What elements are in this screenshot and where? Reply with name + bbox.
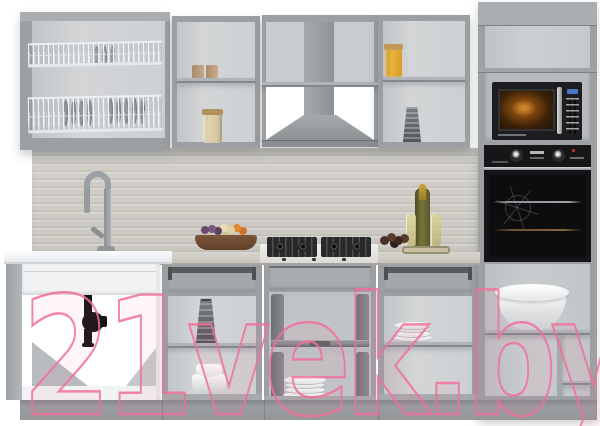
oven-brand-text	[570, 157, 584, 159]
chimney-duct-lower	[304, 87, 334, 119]
burner-2	[298, 242, 308, 252]
basket-side-right	[356, 294, 369, 344]
open-shelf-unit-right	[378, 15, 470, 148]
internal-drawer-front	[269, 266, 371, 290]
bowl-rim	[495, 284, 569, 301]
middle-shelf	[177, 78, 255, 83]
oven-trim	[484, 167, 591, 170]
column-base-interior	[485, 264, 590, 398]
door-line-lower	[493, 229, 582, 231]
dish-rack-cabinet	[20, 12, 170, 150]
sink-bottom-rail	[22, 386, 168, 400]
oven-display-icons-2	[530, 157, 544, 159]
serving-tray-group	[376, 188, 452, 258]
microwave-display	[567, 89, 578, 94]
white-bowl-top	[196, 364, 222, 377]
plate-stack	[394, 322, 432, 342]
basket-back	[277, 296, 363, 342]
hob-control-dot-1	[282, 258, 286, 261]
middle-shelf	[168, 343, 256, 348]
microwave-keypad	[566, 98, 579, 134]
burner-3	[329, 242, 339, 252]
glass-jar-with-grains	[203, 113, 222, 143]
column-top-box	[478, 2, 597, 26]
basket-handle-notch	[310, 341, 330, 346]
drawer-rail-right	[252, 267, 256, 280]
plinth-seam-1	[162, 400, 163, 420]
apron-groove	[24, 271, 166, 272]
beige-cup-2	[206, 65, 218, 78]
empty-niche	[485, 26, 590, 68]
oven-control-panel	[484, 145, 591, 167]
champagne-bottle	[415, 188, 430, 248]
chimney-duct-upper	[304, 22, 334, 82]
cabinet-gap-3	[376, 265, 378, 400]
side-panel-left-face	[6, 263, 22, 400]
glass-right	[431, 214, 441, 248]
base-cabinet-c	[378, 264, 478, 400]
fruits	[201, 226, 209, 234]
oven-door-glass	[489, 175, 586, 257]
hob-grate-left	[267, 237, 317, 257]
column-floor	[485, 396, 590, 398]
cabinet-gap-2	[262, 265, 264, 400]
microwave-label	[498, 134, 526, 136]
pull-out-basket-upper	[269, 294, 371, 347]
right-sub-shelf	[562, 381, 590, 385]
column-plinth	[478, 400, 597, 420]
jar-lid	[384, 44, 403, 50]
plinth	[20, 400, 478, 420]
burner-4	[352, 242, 362, 252]
oven-text-left	[492, 161, 508, 163]
fruit-bowl	[195, 222, 257, 252]
microwave-window	[498, 89, 555, 131]
drawer-rail-right	[468, 267, 472, 280]
oven	[484, 145, 591, 262]
base-cabinet-a	[162, 264, 262, 400]
siphon-stub	[98, 316, 107, 327]
hob-control-dot-2	[312, 258, 316, 261]
metal-tray	[402, 246, 450, 254]
base-cabinet-b-under-hob	[264, 262, 376, 400]
vertical-divider	[557, 335, 562, 398]
open-drawer-box	[384, 267, 472, 292]
wire-drying-rack-upper	[28, 41, 162, 68]
base-shelf	[485, 330, 590, 335]
microwave	[492, 82, 582, 140]
drawer-rail-left	[168, 267, 172, 280]
sink-open-area	[32, 295, 156, 386]
oven-knob-left	[510, 149, 523, 162]
faucet-spout	[84, 189, 90, 213]
glass-left	[406, 214, 416, 248]
jar-lid	[202, 109, 223, 115]
faucet-body	[104, 189, 111, 251]
drawer-rail-left	[384, 267, 388, 280]
beige-cup-1	[192, 65, 204, 78]
hood-bottom-bar	[262, 140, 378, 147]
open-drawer-box	[168, 267, 256, 292]
sink-base-cabinet	[6, 263, 172, 400]
oven-power-led	[572, 149, 575, 152]
large-white-bowl	[495, 284, 569, 332]
hob-control-dot-3	[342, 258, 346, 261]
burner-1	[275, 242, 285, 252]
basket-front-bar	[271, 340, 369, 347]
hood-canopy	[266, 115, 374, 140]
white-bowl-bottom	[192, 374, 226, 394]
gas-hob-grates	[267, 237, 371, 257]
plinth-seam-2	[264, 400, 265, 420]
siphon-flare	[82, 343, 94, 347]
oven-knob-right	[552, 149, 565, 162]
wire-drying-rack-lower	[28, 95, 163, 134]
middle-shelf	[384, 342, 472, 347]
yellow-jar	[385, 49, 402, 77]
cabinet-gap-1	[160, 265, 162, 400]
floor-corner-left	[32, 342, 88, 386]
oven-display-icons	[530, 151, 544, 154]
bottle-foil	[419, 184, 426, 200]
open-shelf-unit-left	[172, 16, 260, 148]
plinth-seam-3	[378, 400, 379, 420]
tall-column	[478, 2, 597, 420]
hood-open-zone	[266, 87, 374, 140]
microwave-handle	[557, 87, 562, 134]
middle-shelf	[383, 77, 465, 82]
cabinet-top-face	[20, 12, 170, 21]
wooden-bowl	[195, 235, 257, 250]
basket-side-left	[271, 294, 284, 344]
door-reflection-ring	[505, 195, 531, 221]
sink-countertop	[4, 251, 172, 264]
dark-fruits	[380, 236, 389, 245]
sink-apron-drawer	[22, 263, 168, 295]
hob-grate-right	[321, 237, 371, 257]
kitchen-product-photo: 21vek.by	[0, 0, 600, 426]
hood-unit	[262, 15, 378, 147]
floor-corner-right	[126, 348, 156, 386]
microwave-niche	[485, 73, 590, 143]
